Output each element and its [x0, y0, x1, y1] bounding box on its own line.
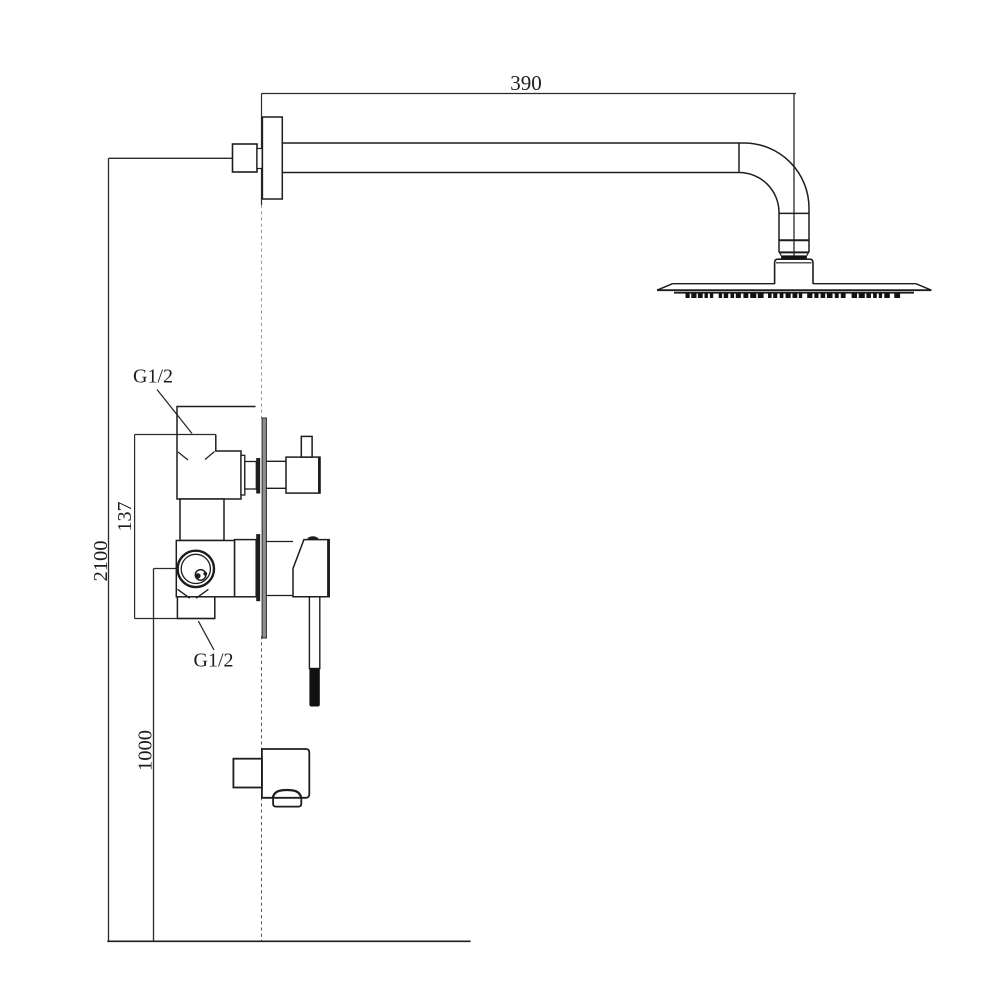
svg-text:G1/2: G1/2	[194, 650, 234, 672]
svg-text:G1/2: G1/2	[133, 366, 173, 388]
svg-text:2100: 2100	[90, 541, 112, 582]
svg-text:137: 137	[114, 502, 136, 532]
svg-text:390: 390	[510, 71, 542, 95]
svg-text:1000: 1000	[135, 730, 157, 771]
